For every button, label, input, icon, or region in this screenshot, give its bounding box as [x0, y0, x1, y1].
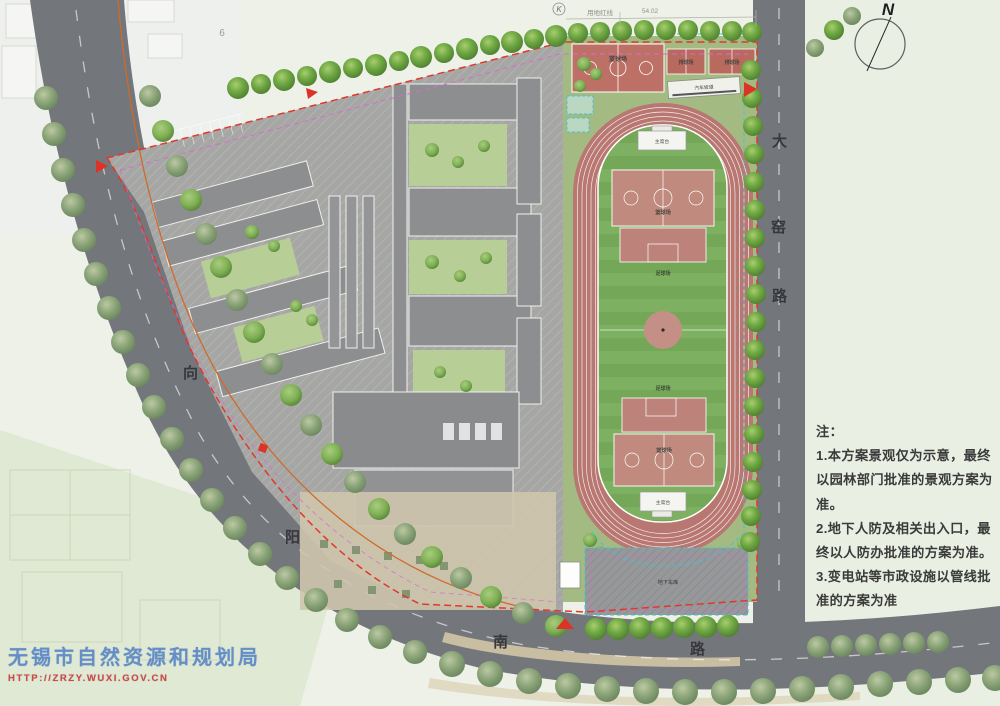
- notes-line: 2.地下人防及相关出入口，最: [816, 517, 1000, 541]
- basketball-court-north-label: 篮球场: [608, 55, 627, 63]
- road-char: 大: [772, 132, 787, 150]
- goal-area-south: [622, 398, 706, 432]
- goal-area-north: [620, 228, 706, 262]
- plan-notes: 注： 1.本方案景观仅为示意，最终 以园林部门批准的景观方案为 准。 2.地下人…: [816, 420, 1000, 614]
- notes-line: 1.本方案景观仅为示意，最终: [816, 444, 1000, 468]
- volleyball-court-a-label: 排球场: [678, 59, 693, 66]
- dim-length: 54.02: [642, 8, 659, 15]
- sports-zone: 篮球场 排球场 排球场 汽车坡道: [560, 36, 757, 615]
- north-arrow-label: N: [882, 0, 895, 19]
- infield-basketball-north-label: 篮球场: [654, 208, 671, 216]
- road-char: 路: [772, 287, 788, 305]
- red-line-dim-label: 用地红线: [587, 8, 614, 17]
- volleyball-court-b-label: 排球场: [724, 59, 739, 66]
- road-char: 阳: [285, 529, 300, 546]
- road-char: 路: [690, 640, 706, 658]
- road-char: 南: [493, 633, 508, 651]
- infield-basketball-south: 篮球场: [614, 434, 714, 486]
- corridor-buildings: [329, 196, 374, 348]
- underground-garage-label: 地下车库: [658, 578, 679, 586]
- plot-number: 6: [219, 28, 225, 39]
- notes-line: 3.变电站等市政设施以管线批: [816, 565, 1000, 589]
- agency-name: 无锡市自然资源和规划局: [8, 641, 261, 670]
- stand-south-label: 主席台: [656, 499, 671, 506]
- notes-line: 准。: [816, 493, 1000, 517]
- notes-line: 以园林部门批准的景观方案为: [816, 468, 1000, 492]
- notes-line: 准的方案为准: [816, 589, 1000, 613]
- stand-north-label: 主席台: [655, 138, 670, 145]
- notes-heading: 注：: [816, 420, 1000, 444]
- infield-basketball-north: 篮球场: [612, 170, 714, 226]
- soccer-field-south-label: 足球场: [655, 385, 670, 392]
- substation-box: [560, 562, 580, 588]
- utility-boxes: [567, 96, 593, 132]
- notes-line: 终以人防办批准的方案为准。: [816, 541, 1000, 565]
- road-char: 向: [183, 364, 198, 382]
- road-char: 窑: [771, 218, 786, 236]
- agency-url: HTTP://ZRZY.WUXI.GOV.CN: [8, 673, 261, 684]
- soccer-field-north-label: 足球场: [655, 270, 670, 277]
- site-plan-image: 篮球场 排球场 排球场 汽车坡道: [0, 0, 1000, 706]
- infield-basketball-south-label: 篮球场: [655, 446, 672, 454]
- k-marker-label: K: [556, 5, 562, 14]
- agency-watermark: 无锡市自然资源和规划局 HTTP://ZRZY.WUXI.GOV.CN: [8, 641, 261, 684]
